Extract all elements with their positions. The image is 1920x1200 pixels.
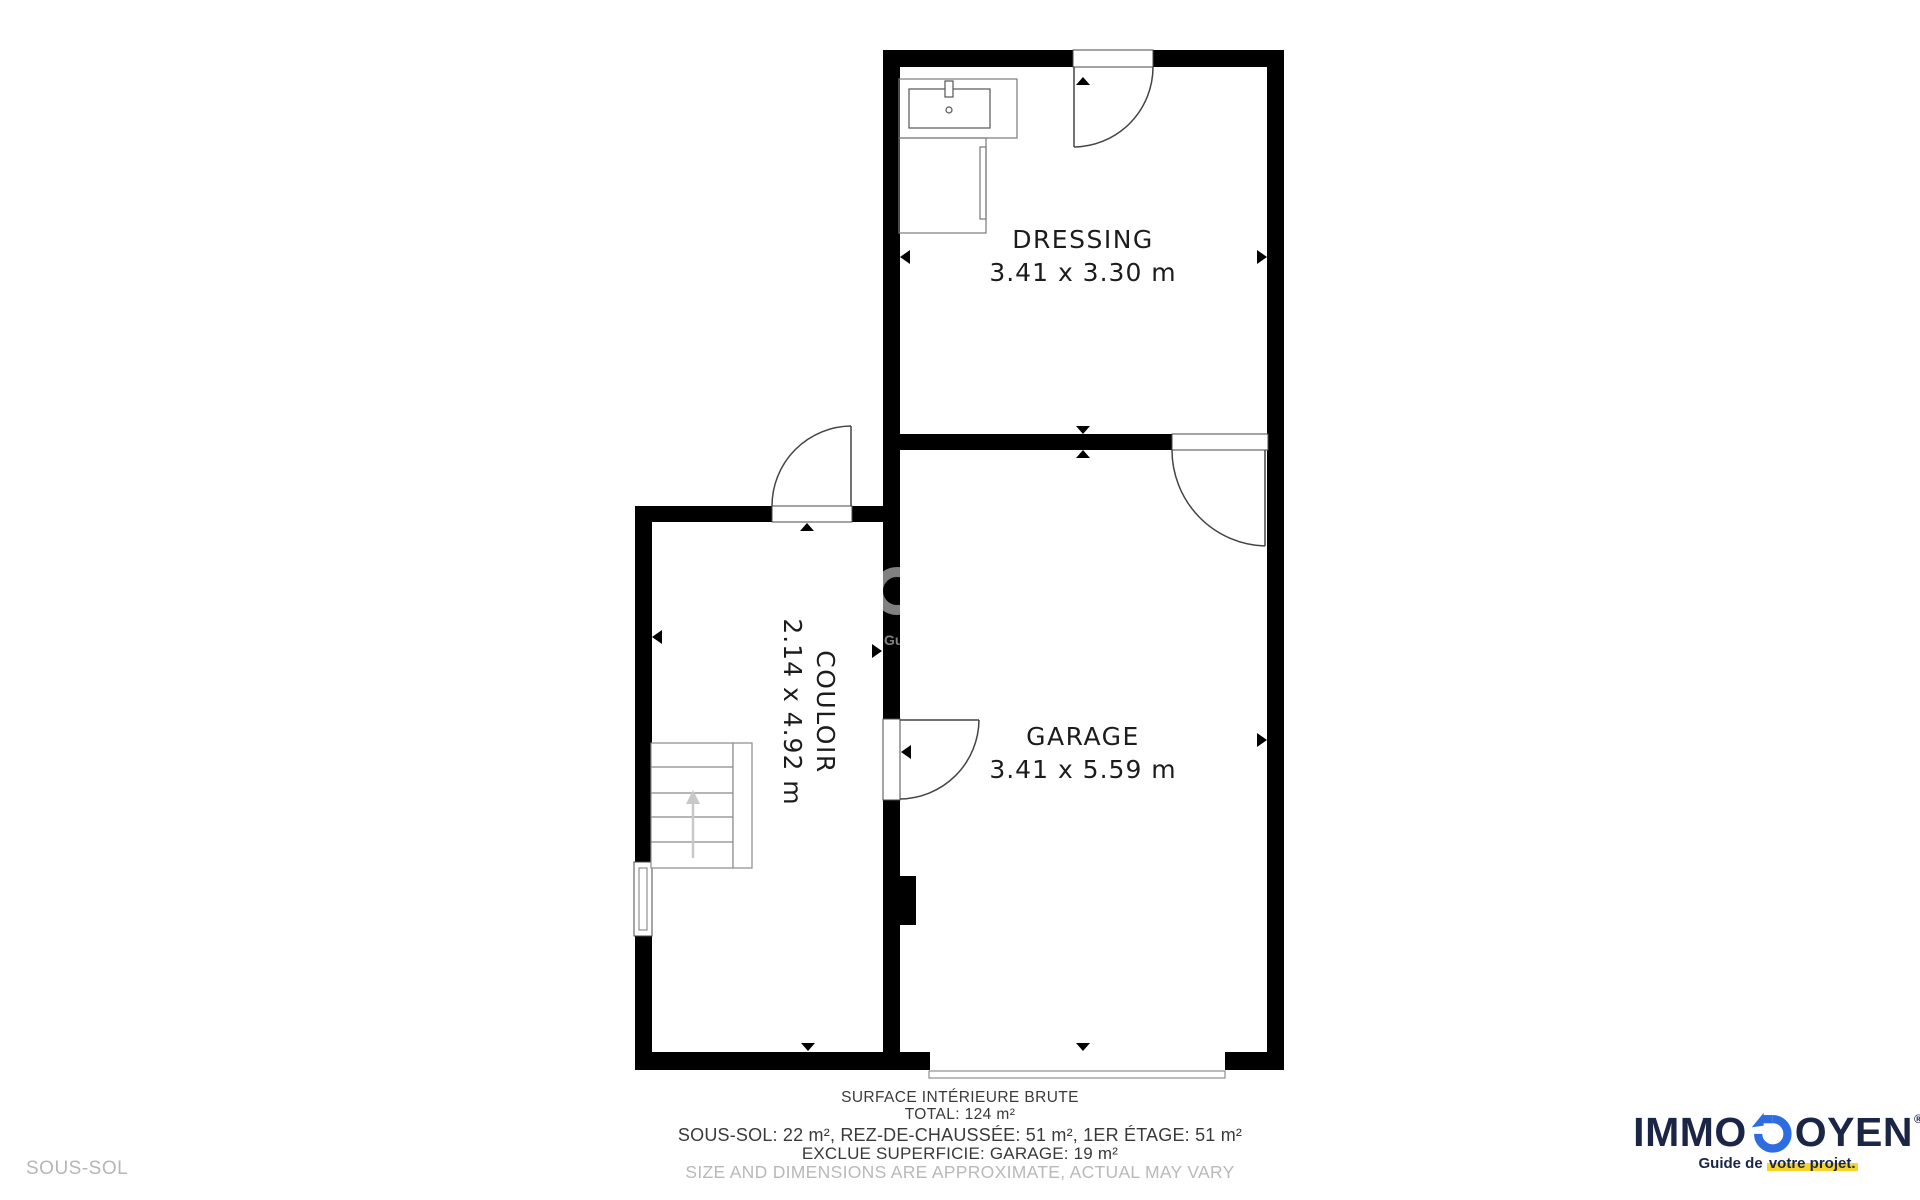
wall-pillar-protrusion	[900, 876, 916, 925]
watermark-tagline: Guide de votre projet.	[884, 632, 1029, 648]
wall-couloir-left-lower	[635, 936, 652, 1070]
floor-level-label: SOUS-SOL	[26, 1158, 128, 1180]
wall-divider-dressing-garage	[900, 434, 1172, 450]
wall-bottom-right-segment	[1225, 1052, 1284, 1070]
cabinet-door-line	[980, 147, 986, 219]
door-swings	[772, 67, 1265, 799]
dressing-top-door-arc	[1074, 67, 1153, 147]
stairs-stringer	[733, 743, 752, 868]
wall-left-main-lower	[883, 800, 900, 1070]
marker-couloir-bottom	[801, 1043, 815, 1051]
logo-wordmark: IMMO OYEN ®	[1628, 1110, 1920, 1154]
logo-text-immo: IMMO	[1633, 1110, 1747, 1154]
garage-top-door-opening	[1172, 434, 1268, 450]
wall-right-exterior	[1267, 50, 1284, 1070]
couloir-top-door-opening	[772, 506, 852, 522]
tagline-prefix: Guide de	[1698, 1155, 1766, 1172]
garage-side-door-opening	[883, 719, 900, 800]
sink-faucet	[945, 81, 953, 97]
marker-garage-top	[1076, 450, 1090, 458]
sink-vanity	[899, 79, 1017, 138]
wall-left-main-upper	[883, 50, 900, 719]
logo-tagline: Guide de votre projet.	[1628, 1155, 1920, 1172]
summary-title: SURFACE INTÉRIEURE BRUTE	[0, 1089, 1920, 1106]
room-label-dressing: DRESSING 3.41 x 3.30 m	[903, 223, 1263, 289]
walls	[635, 50, 1284, 1070]
couloir-top-door-arc	[772, 426, 851, 506]
sink-basin	[909, 89, 990, 128]
registered-trademark-icon: ®	[1914, 1112, 1920, 1126]
room-dimensions: 2.14 x 4.92 m	[776, 542, 809, 882]
window-frame-outer	[634, 862, 652, 936]
wall-top-left-segment	[883, 50, 1073, 67]
room-name: GARAGE	[903, 720, 1263, 753]
marker-couloir-right	[872, 644, 882, 658]
watermark: Guide de votre projet.	[878, 572, 1029, 648]
staircase	[651, 743, 752, 868]
cabinet-body	[899, 138, 986, 233]
wall-bottom-left-segment	[635, 1052, 930, 1070]
door-openings	[772, 50, 1268, 800]
marker-couloir-left	[652, 630, 662, 644]
wall-top-right-segment	[1153, 50, 1284, 67]
sink-counter	[899, 79, 1017, 138]
immodoyen-logo: IMMO OYEN ® Guide de votre projet.	[1628, 1110, 1920, 1172]
stairs-direction-arrow	[686, 790, 700, 858]
marker-dressing-bottom	[1076, 426, 1090, 434]
window-frame-inner	[639, 868, 647, 930]
tagline-highlighted: votre projet.	[1767, 1155, 1858, 1172]
room-name: DRESSING	[903, 223, 1263, 256]
logo-text-oyen: OYEN	[1795, 1110, 1913, 1154]
room-dimensions: 3.41 x 5.59 m	[903, 753, 1263, 786]
watermark-logo-mark	[878, 572, 916, 610]
room-label-couloir: COULOIR 2.14 x 4.92 m	[770, 542, 842, 882]
wall-couloir-left-upper	[635, 506, 652, 862]
cabinet	[899, 138, 986, 233]
wall-couloir-top-left	[635, 506, 772, 522]
marker-garage-bottom	[1076, 1043, 1090, 1051]
marker-dressing-top	[1076, 77, 1090, 85]
stairs-arrow-head	[686, 790, 700, 804]
garage-door-panel	[929, 1071, 1225, 1078]
floorplan-canvas: Guide de votre projet.	[0, 0, 1920, 1200]
room-label-garage: GARAGE 3.41 x 5.59 m	[903, 720, 1263, 786]
wall-couloir-top-right	[852, 506, 883, 522]
garage-top-door-arc	[1172, 450, 1265, 546]
couloir-window	[634, 862, 652, 936]
sink-drain	[946, 107, 952, 113]
dressing-top-door-opening	[1073, 50, 1153, 67]
logo-d-arrow-icon	[1748, 1110, 1794, 1154]
marker-couloir-top	[800, 523, 814, 531]
room-name: COULOIR	[809, 542, 842, 882]
stairs-outline	[651, 743, 733, 868]
room-dimensions: 3.41 x 3.30 m	[903, 256, 1263, 289]
